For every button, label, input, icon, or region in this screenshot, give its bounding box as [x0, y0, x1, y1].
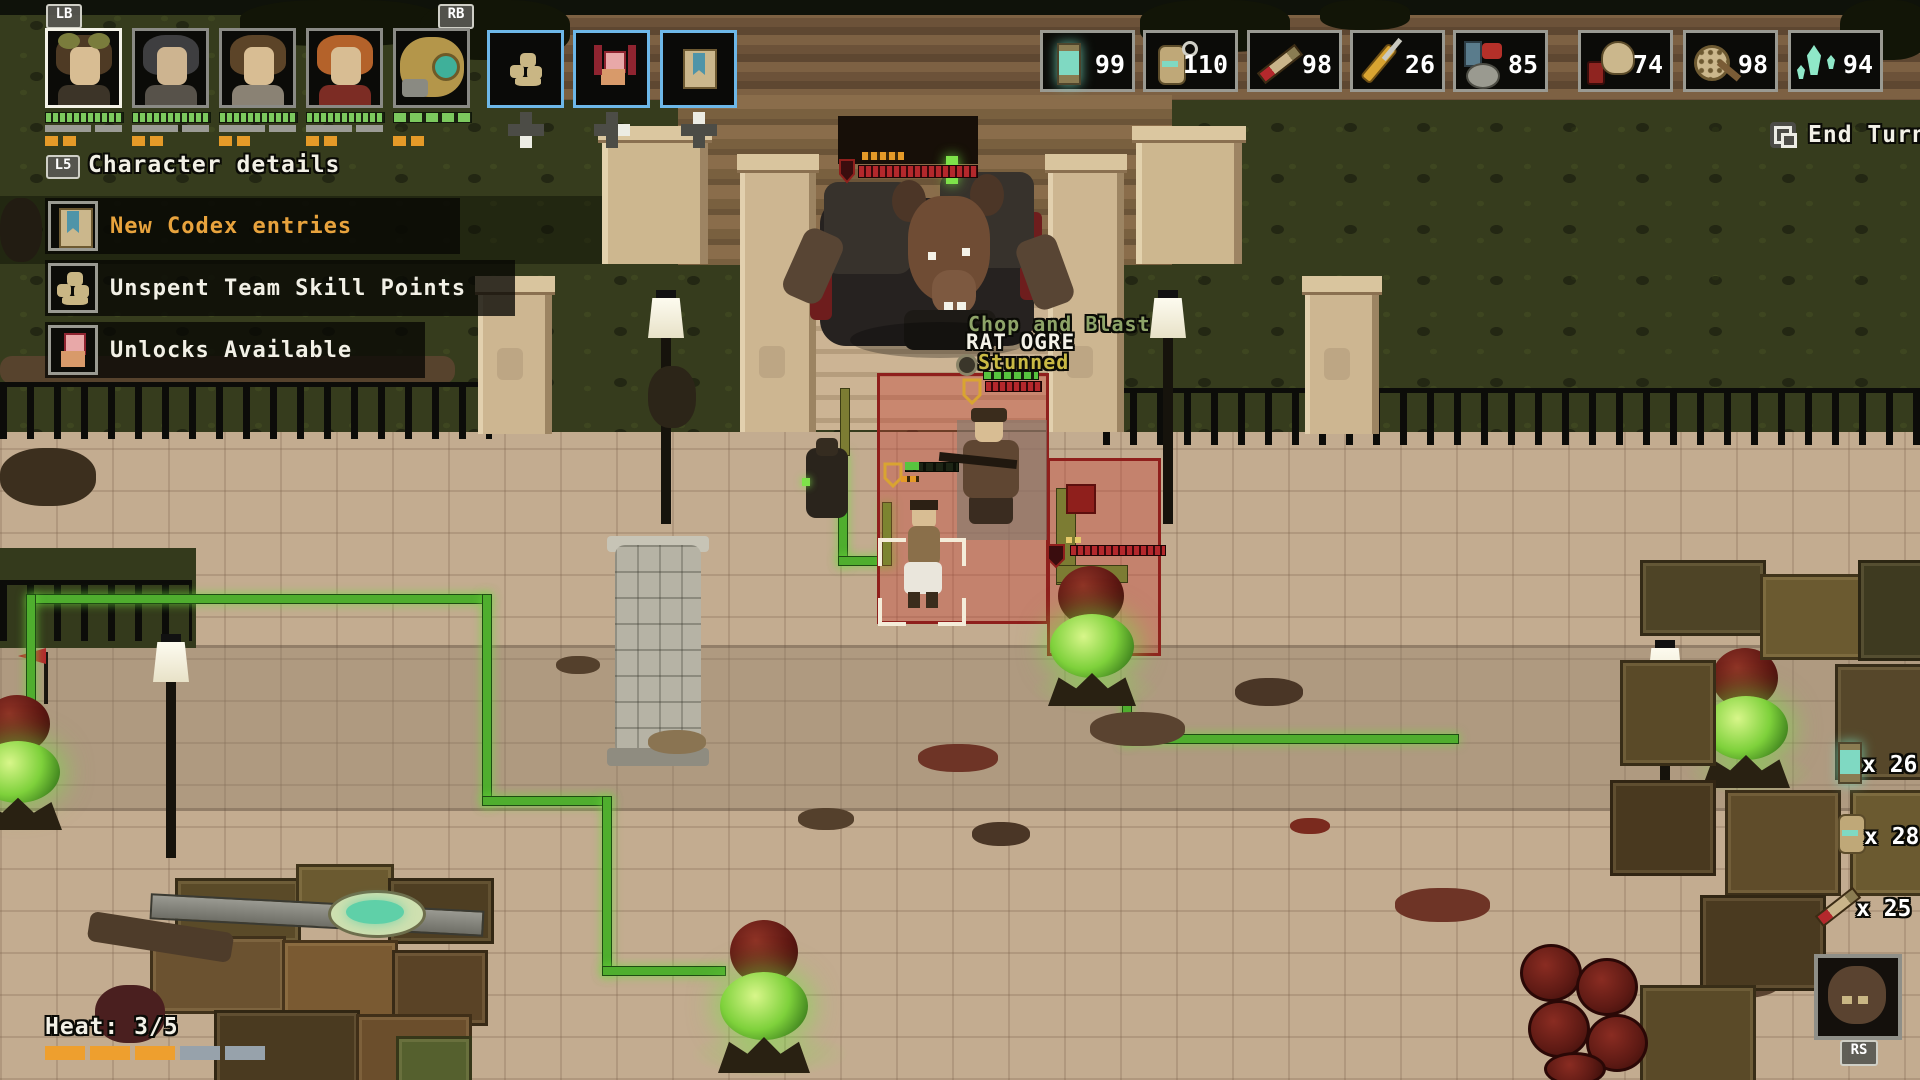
heat-segment-empty [225, 1046, 265, 1060]
lantern-icon[interactable] [1838, 742, 1862, 784]
energy-path [602, 796, 612, 976]
green-turret[interactable] [714, 920, 814, 1075]
end-turn-label: End Turn [1808, 122, 1920, 148]
dpad-right-icon [594, 112, 630, 148]
armor-bar [356, 125, 383, 132]
lamp-post [1163, 332, 1173, 524]
codex-slot[interactable] [660, 30, 737, 108]
l5-button[interactable]: L5 [46, 155, 80, 179]
stone-monument [615, 545, 701, 755]
shadow-unit[interactable] [798, 438, 856, 530]
lamp-cap [656, 290, 676, 298]
portrait-character-4[interactable] [306, 28, 383, 108]
armor-bar [182, 125, 209, 132]
portrait-character-3[interactable] [219, 28, 296, 108]
stunned-icon [956, 354, 978, 376]
character-details-label: Character details [88, 152, 340, 178]
sack [648, 730, 706, 754]
notification-label: Unlocks Available [110, 338, 352, 363]
portrait-character-1[interactable] [45, 28, 122, 108]
shadow-figure [0, 198, 42, 262]
item-count: 99 [1095, 50, 1125, 79]
item-count: 110 [1183, 50, 1228, 79]
energy-path [482, 594, 492, 806]
dpad-down-icon [508, 112, 544, 148]
ap-pip [45, 136, 58, 146]
lamp-cap [161, 634, 181, 642]
ap-pip [63, 136, 76, 146]
portrait-character-2[interactable] [132, 28, 209, 108]
ap-pip [306, 136, 319, 146]
notification-new-codex[interactable]: New Codex entries [45, 198, 460, 254]
crate [1620, 660, 1716, 766]
ap-pip [411, 136, 424, 146]
crate [1760, 574, 1866, 660]
heat-segment-empty [180, 1046, 220, 1060]
loot-count-label: x 26 [1862, 752, 1917, 778]
notification-label: Unspent Team Skill Points [110, 276, 466, 301]
lamp-head [153, 642, 189, 682]
ally-armor-pips [901, 476, 919, 482]
notification-unlocks[interactable]: Unlocks Available [45, 322, 425, 378]
hp-bar [219, 112, 298, 123]
rs-button[interactable]: RS [1840, 1040, 1878, 1066]
armor-bar [132, 125, 178, 132]
pip [1066, 537, 1072, 543]
item-count: 98 [1302, 50, 1332, 79]
tree-canopy [1320, 0, 1410, 30]
corpse [918, 744, 998, 772]
item-count: 94 [1843, 50, 1873, 79]
portrait-character-5-robot[interactable] [393, 28, 470, 108]
item-count: 74 [1633, 50, 1663, 79]
ally-health-remaining [905, 462, 919, 470]
musket-gem [346, 900, 404, 924]
crate [1610, 780, 1716, 876]
lb-button[interactable]: LB [46, 4, 82, 29]
lamp-post [661, 332, 671, 524]
view-button-icon [1770, 122, 1796, 148]
stair-plinth [602, 136, 708, 264]
ally-shield-icon [883, 462, 903, 488]
team-skill-slot[interactable] [487, 30, 564, 108]
lamp-head [1150, 298, 1186, 338]
ap-pip [150, 136, 163, 146]
red-barrel [1520, 944, 1582, 1002]
hp-bar [393, 112, 472, 123]
item-slot-crystals[interactable]: 94 [1788, 30, 1883, 92]
enemy-ammo-bar [983, 371, 1039, 380]
end-turn-button[interactable]: End Turn [1770, 120, 1920, 154]
item-slot-round-shield[interactable]: 98 [1683, 30, 1778, 92]
ap-pip [237, 136, 250, 146]
item-slot-lantern[interactable]: 99 [1040, 30, 1135, 92]
crate [396, 1036, 472, 1080]
unlocks-icon [48, 325, 98, 375]
hp-bar [132, 112, 211, 123]
heat-segment-filled [45, 1046, 85, 1060]
item-slot-syringe[interactable]: 98 [1247, 30, 1342, 92]
iron-fence [0, 382, 492, 439]
hp-bar [306, 112, 385, 123]
lamp-post [166, 676, 176, 858]
energy-path [602, 966, 726, 976]
debris [798, 808, 854, 830]
target-preview-slot[interactable] [1814, 954, 1902, 1040]
blood-smear [1290, 818, 1330, 834]
corpse [1235, 678, 1303, 706]
rb-button[interactable]: RB [438, 4, 474, 29]
lamp-cap [1158, 290, 1178, 298]
crate [1700, 895, 1826, 991]
ap-pip [393, 136, 406, 146]
ap-pip [324, 136, 337, 146]
green-turret[interactable] [0, 695, 64, 830]
turret-health-bar [1070, 545, 1166, 556]
hazard-block [1066, 484, 1096, 514]
lamp-head [648, 298, 684, 338]
crate [1640, 985, 1756, 1080]
loot-count-label: x 28 [1864, 824, 1919, 850]
ap-pip [132, 136, 145, 146]
armor-bar [219, 125, 265, 132]
armor-bar [95, 125, 122, 132]
corpse [1395, 888, 1490, 922]
corpse [1090, 712, 1185, 746]
red-barrel [1576, 958, 1638, 1016]
heat-label: Heat: 3/5 [45, 1014, 179, 1040]
item-slot-gas-mask[interactable]: 74 [1578, 30, 1673, 92]
red-barrel [1544, 1052, 1606, 1080]
hp-bar [45, 112, 124, 123]
pip [1075, 537, 1081, 543]
debris [556, 656, 600, 674]
crate [1640, 560, 1766, 636]
energy-path [482, 796, 612, 806]
boss-health-bar [858, 165, 978, 178]
corpse [972, 822, 1030, 846]
crate [214, 1010, 360, 1080]
item-slot-medkit[interactable]: 85 [1453, 30, 1548, 92]
codex-book-icon [48, 201, 98, 251]
armor-bar [269, 125, 296, 132]
notification-label: New Codex entries [110, 214, 352, 239]
enemy-shield-icon [961, 377, 983, 405]
debris-heap [648, 366, 696, 428]
ap-pip [219, 136, 232, 146]
boss-shield-icon [838, 158, 856, 184]
enemy-bandit-unit[interactable] [955, 408, 1040, 526]
stair-plinth [1136, 136, 1242, 264]
item-slot-grenade[interactable]: 110 [1143, 30, 1238, 92]
unlocks-slot[interactable] [573, 30, 650, 108]
item-count: 98 [1738, 50, 1768, 79]
heat-segment-filled [135, 1046, 175, 1060]
loot-count-label: x 25 [1856, 896, 1911, 922]
rat-preview [1828, 966, 1886, 1024]
red-barrel [1528, 1000, 1590, 1058]
armor-bar [45, 125, 91, 132]
grenade-icon[interactable] [1838, 814, 1866, 854]
notification-team-skill[interactable]: Unspent Team Skill Points [45, 260, 515, 316]
crate [1725, 790, 1841, 896]
energy-path [30, 594, 490, 604]
ally-unit-selected[interactable] [900, 500, 948, 610]
heat-segment-filled [90, 1046, 130, 1060]
lamp-cap [1655, 640, 1675, 648]
rat-eye [1842, 996, 1852, 1004]
debris-pile [0, 448, 96, 506]
fence-pillar [1305, 288, 1379, 434]
dpad-up-icon [681, 112, 717, 148]
green-turret[interactable] [1046, 566, 1138, 706]
item-count: 85 [1508, 50, 1538, 79]
team-skill-icon [48, 263, 98, 313]
rat-eye [1858, 996, 1868, 1004]
armor-bar [306, 125, 352, 132]
item-slot-tools[interactable]: 26 [1350, 30, 1445, 92]
game-screen: Chop and Blast RAT OGRE Stunned [0, 0, 1920, 1080]
enemy-health-bar [985, 381, 1042, 392]
boss-armor-bar [862, 152, 904, 160]
item-count: 26 [1405, 50, 1435, 79]
iron-fence [1103, 388, 1920, 445]
crate [1858, 560, 1920, 661]
